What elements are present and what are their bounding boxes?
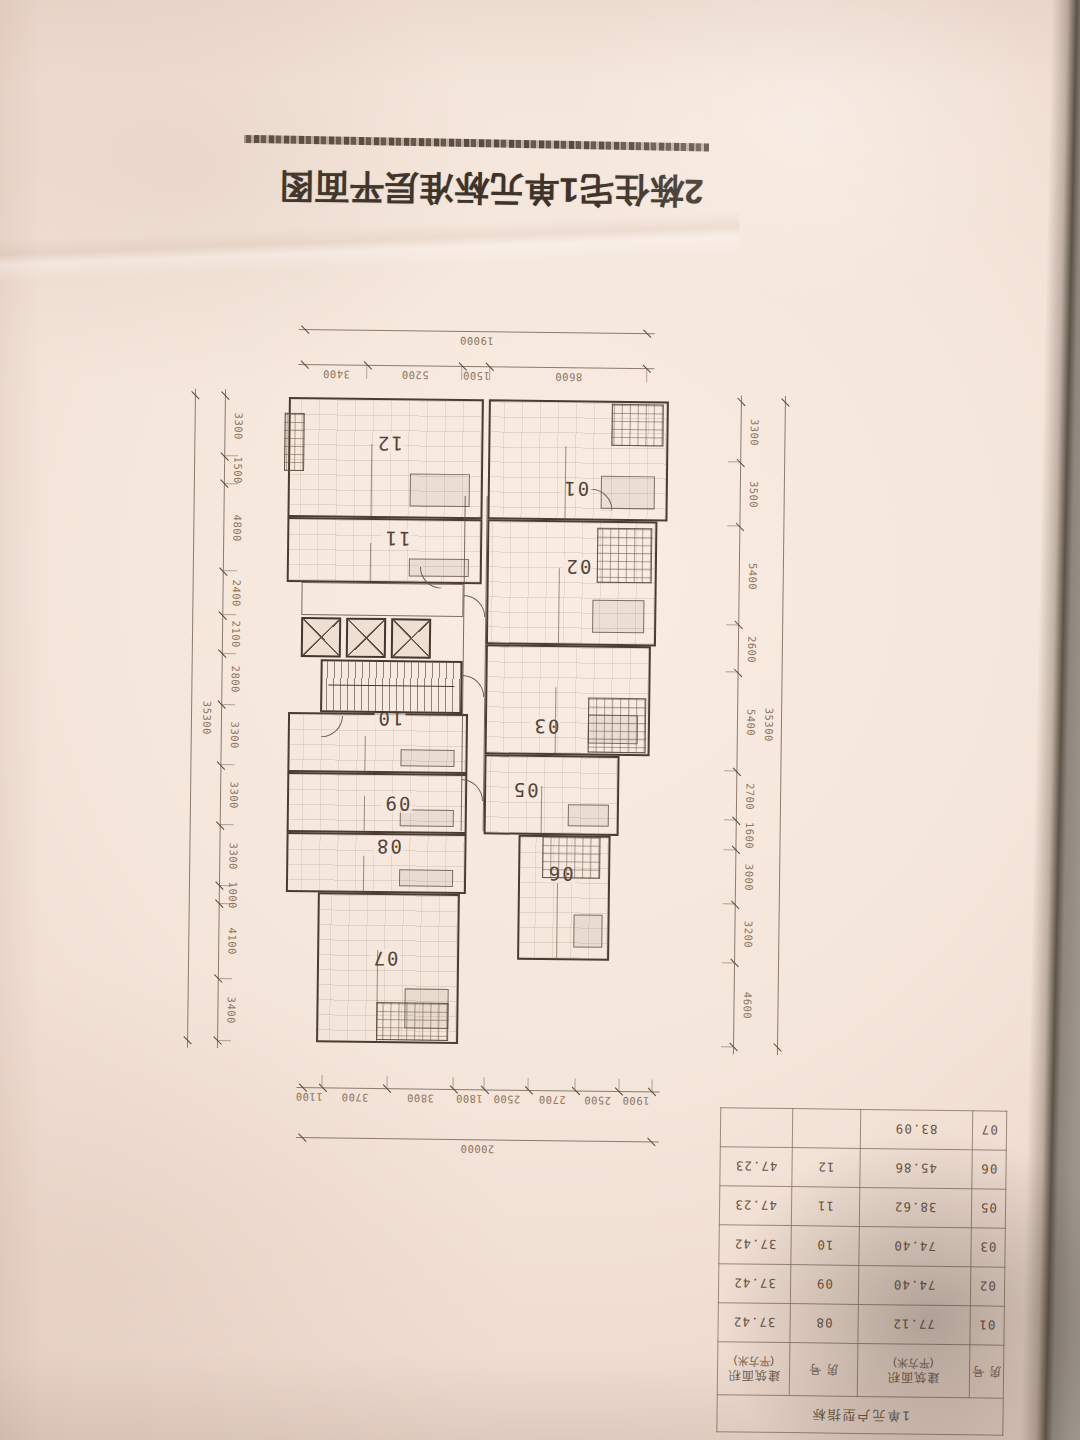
dim-extension — [575, 1078, 576, 1091]
dim-segment-label: 8600 — [490, 371, 647, 383]
unit-label: 11 — [382, 529, 413, 548]
dim-extension — [528, 1078, 529, 1091]
dim-segment-label: 3000 — [744, 864, 755, 891]
unit-05: 05 — [484, 754, 620, 836]
dim-extension — [222, 704, 235, 705]
column-header: 建筑面积(平方米) — [857, 1343, 970, 1397]
dim-extension — [728, 462, 741, 463]
dim-extension — [724, 770, 737, 771]
title-underline — [244, 135, 709, 152]
unit-12: 12 — [287, 397, 483, 519]
table-row: 0374.401037.42 — [719, 1225, 1005, 1267]
dim-extension — [651, 1079, 652, 1092]
dim-segment-label: 3300 — [749, 419, 760, 446]
dim-extension — [646, 369, 647, 382]
dim-segment-label: 1600 — [744, 822, 755, 849]
dim-total-label: 35300 — [202, 701, 213, 735]
unit-label: 07 — [370, 948, 401, 967]
dim-extension — [461, 367, 462, 380]
elevator-shaft — [391, 618, 431, 658]
dim-segment-label: 3400 — [226, 996, 237, 1023]
area-table: 1单元户型指标房 号建筑面积(平方米)房 号建筑面积(平方米)0177.1208… — [716, 1107, 1007, 1435]
dim-extension — [322, 1075, 323, 1088]
column-header: 房 号 — [969, 1345, 1004, 1398]
photographed-drawing-sheet: 2栋住宅1单元标准层平面图 0102030506070809101112 — [0, 0, 1080, 1440]
dim-segment-label: 4800 — [232, 514, 243, 541]
unit-11: 11 — [287, 517, 483, 584]
unit-label: 08 — [373, 836, 404, 855]
dim-segment-label: 3800 — [387, 1093, 453, 1104]
dim-extension — [221, 764, 234, 765]
kitchen-hatch — [597, 528, 653, 584]
dim-extension — [219, 978, 232, 979]
staircase — [320, 659, 463, 714]
dim-extension — [225, 455, 238, 456]
unit-label: 09 — [381, 794, 412, 813]
dim-segment-label: 3300 — [229, 782, 240, 809]
dim-segment-label: 5400 — [747, 562, 758, 589]
dim-segment-label: 3300 — [229, 722, 240, 749]
table-row: 0538.621147.23 — [719, 1186, 1005, 1228]
dim-segment-label: 1500 — [233, 457, 244, 484]
dim-total-label: 19000 — [306, 334, 648, 349]
dim-total-label: 20000 — [303, 1142, 652, 1157]
dim-segment-label: 2500 — [576, 1095, 620, 1106]
unit-label: 02 — [562, 557, 593, 576]
dim-extension — [721, 1046, 734, 1047]
dim-segment-label: 4100 — [227, 928, 238, 955]
dim-extension — [723, 849, 736, 850]
dim-total-line — [187, 389, 196, 1048]
dim-extension — [223, 653, 236, 654]
column-header: 建筑面积(平方米) — [717, 1342, 790, 1396]
table-header-row: 房 号建筑面积(平方米)房 号建筑面积(平方米) — [717, 1342, 1004, 1398]
unit-label: 12 — [374, 433, 405, 452]
dim-extension — [220, 903, 233, 904]
dim-extension — [727, 526, 740, 527]
elevator-shaft — [346, 618, 386, 658]
unit-label: 05 — [510, 780, 541, 799]
dim-total-label: 35300 — [763, 708, 774, 742]
dim-line — [217, 389, 226, 1048]
dim-segment-label: 2100 — [231, 621, 242, 648]
dim-extension — [223, 614, 236, 615]
dim-total-line — [777, 396, 786, 1055]
kitchen-hatch — [542, 836, 601, 879]
table-row: 0783.09 — [720, 1108, 1006, 1150]
dim-extension — [366, 366, 367, 379]
dim-extension — [484, 1077, 485, 1090]
table-row: 0645.861247.23 — [720, 1147, 1006, 1189]
dim-segment-label: 3300 — [233, 413, 244, 440]
dim-segment-label: 3400 — [305, 369, 367, 380]
drawing-title: 2栋住宅1单元标准层平面图 — [238, 156, 704, 214]
dim-extension — [386, 1076, 387, 1089]
dim-extension — [722, 962, 735, 963]
dim-extension — [726, 624, 739, 625]
dim-extension — [218, 1040, 231, 1041]
dim-segment-label: 3200 — [743, 921, 754, 948]
drawing-document: 2栋住宅1单元标准层平面图 0102030506070809101112 — [0, 0, 1080, 1440]
dim-segment-label: 2700 — [745, 783, 756, 810]
kitchen-hatch — [588, 698, 647, 754]
dim-segment-label: 2600 — [746, 636, 757, 663]
column-header: 房 号 — [789, 1343, 857, 1397]
unit-09: 09 — [287, 772, 468, 834]
dim-extension — [726, 672, 739, 673]
balcony-hatch — [284, 413, 305, 471]
dim-segment-label: 3500 — [748, 481, 759, 508]
dim-segment-label: 4600 — [742, 992, 753, 1019]
dim-extension — [618, 1079, 619, 1092]
dim-extension — [224, 571, 237, 572]
dim-segment-label: 1900 — [619, 1095, 652, 1106]
dim-extension — [723, 904, 736, 905]
dim-segment-label: 2400 — [231, 580, 242, 607]
dim-segment-label: 2800 — [230, 666, 241, 693]
dim-extension — [221, 825, 234, 826]
dim-extension — [489, 367, 490, 380]
dim-segment-label: 1100 — [303, 1092, 322, 1103]
dim-segment-label: 3300 — [228, 842, 239, 869]
dim-segment-label: 5400 — [746, 709, 757, 736]
dim-line — [733, 395, 742, 1054]
unit-label: 03 — [530, 716, 561, 735]
dim-extension — [225, 483, 238, 484]
unit-10: 10 — [287, 712, 468, 774]
dim-extension — [453, 1077, 454, 1090]
elevator-shaft — [301, 617, 341, 657]
balcony-hatch — [376, 1002, 448, 1041]
unit-08: 08 — [286, 832, 467, 894]
table-row: 0177.120837.42 — [718, 1303, 1004, 1345]
dim-extension — [220, 885, 233, 886]
table-title-row: 1单元户型指标 — [717, 1395, 1003, 1435]
table-row: 0274.400937.42 — [718, 1264, 1004, 1306]
dim-segment-label: 1500 — [462, 371, 490, 382]
dim-segment-label: 2700 — [528, 1094, 575, 1105]
balcony-hatch — [611, 404, 664, 447]
dim-segment-label: 3700 — [323, 1092, 388, 1103]
dim-segment-label: 5200 — [367, 369, 462, 381]
dim-segment-label: 1800 — [453, 1093, 485, 1104]
dim-segment-label: 2500 — [485, 1094, 529, 1105]
unit-label: 01 — [560, 479, 591, 498]
dim-extension — [724, 820, 737, 821]
